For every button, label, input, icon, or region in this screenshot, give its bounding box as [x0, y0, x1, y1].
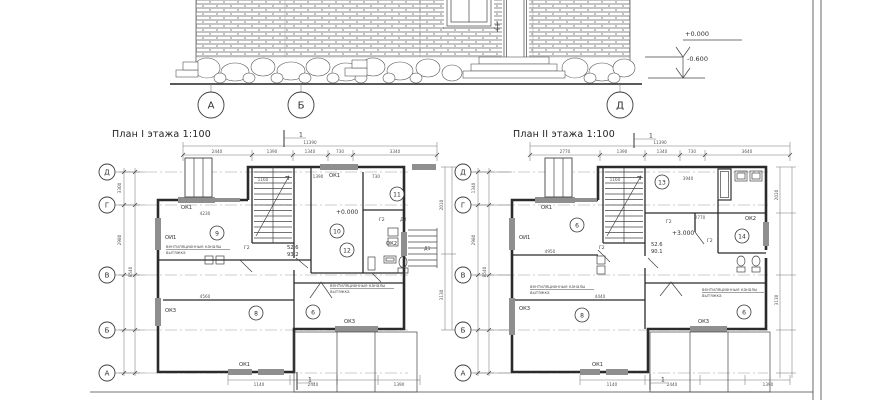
labels-2: ОК1 ОИ1 ОК2 ОК3 ОК1 ОК3 Г2 Г2 Г2 +3.000 … — [519, 175, 764, 368]
window-label: ОК1 — [541, 205, 552, 211]
dim: 4950 — [545, 249, 556, 254]
door-label: Г2 — [666, 219, 672, 225]
dim: 2770 — [560, 149, 571, 154]
dim: 3130 — [774, 294, 779, 305]
dim: 1390 — [267, 149, 278, 154]
drawing-canvas: А Б Д +0.000 -0.600 Д Г В Б — [0, 0, 870, 400]
vent-note: вытяжка — [530, 290, 550, 295]
dim: 2010 — [774, 189, 779, 200]
dim: 3640 — [742, 149, 753, 154]
p1-axis-a: А — [105, 370, 110, 378]
blueprint-svg: А Б Д +0.000 -0.600 Д Г В Б — [0, 0, 870, 400]
window-label: ОК2 — [386, 241, 397, 247]
door-label: Д2 — [400, 217, 407, 223]
level-minus: -0.600 — [687, 55, 708, 63]
vent-note: вентиляционные каналы — [530, 284, 585, 289]
floor-plan-1: Д Г В Б А 2440 1390 1340 730 3340 11390 — [99, 130, 456, 392]
elevation-axis-bubbles: А Б Д — [198, 84, 633, 118]
window-label: ОК3 — [698, 319, 709, 325]
vent-note: вытяжка — [330, 289, 350, 294]
p1-axis-d: Д — [104, 169, 110, 177]
section-mark-1: 1 — [299, 132, 303, 139]
window-label: ОК1 — [181, 205, 192, 211]
window-label: ОК1 — [239, 362, 250, 368]
dim: 8540 — [482, 266, 487, 277]
stair-dim: 1160 — [258, 177, 269, 182]
dim: 2010 — [439, 199, 444, 210]
dim: 4440 — [595, 294, 606, 299]
axis-bubble-b: Б — [298, 101, 305, 112]
p2-axis-v: В — [461, 272, 466, 280]
window-label: ОК3 — [344, 319, 355, 325]
level-zero: +0.000 — [685, 30, 709, 38]
p2-axis-d: Д — [460, 169, 466, 177]
dim: 1390 — [763, 382, 774, 387]
dim: 1140 — [254, 382, 265, 387]
chimney-2 — [545, 158, 572, 197]
floor-plan-2: Д Г В Б А 2770 1390 1340 730 3640 11390 — [455, 133, 796, 393]
chimney-1 — [185, 158, 212, 197]
window-label: ОИ1 — [519, 235, 530, 241]
door-label: Д1 — [424, 246, 431, 252]
dim-total: 11390 — [653, 140, 667, 145]
room-number: 9 — [215, 231, 219, 238]
window-label: ОК1 — [592, 362, 603, 368]
dim: 730 — [688, 149, 696, 154]
axis-bubble-a: А — [208, 101, 215, 112]
window-label: ОИ1 — [165, 235, 176, 241]
p2-axis-b: Б — [461, 327, 466, 335]
toilet-icon — [737, 256, 745, 266]
dim: 1340 — [657, 149, 668, 154]
room-number: 14 — [738, 234, 746, 241]
elevation-steps — [463, 57, 565, 78]
dim: 1340 — [471, 182, 476, 193]
door-label: Г2 — [599, 245, 605, 251]
dim: 1390 — [394, 382, 405, 387]
level-marks: +0.000 -0.600 — [645, 30, 742, 78]
dim: 2980 — [471, 234, 476, 245]
stair-dim: 1160 — [610, 177, 621, 182]
dim: 3130 — [439, 289, 444, 300]
vent-note: вытяжка — [166, 250, 186, 255]
axis-bubble-d: Д — [616, 101, 624, 112]
room-number: 6 — [742, 310, 746, 317]
dim: 2440 — [667, 382, 678, 387]
door-label: Г2 — [244, 245, 250, 251]
elevation-window — [443, 0, 495, 29]
window-label: ОК3 — [165, 308, 176, 314]
vent-note: вентиляционные каналы — [166, 244, 221, 249]
dim: 3340 — [390, 149, 401, 154]
elevation: А Б Д +0.000 -0.600 — [170, 0, 742, 118]
section-mark-1: 1 — [661, 377, 665, 384]
dim: 4560 — [200, 294, 211, 299]
plan1-title: План I этажа 1:100 — [112, 129, 211, 140]
room-number: 6 — [575, 223, 579, 230]
dim: 1340 — [305, 149, 316, 154]
room-number: 6 — [311, 310, 315, 317]
room-number: 8 — [580, 313, 584, 320]
p1-axis-v: В — [105, 272, 110, 280]
dim: 1390 — [617, 149, 628, 154]
toilet-icon — [752, 256, 760, 266]
window-label: ОК1 — [329, 173, 340, 179]
dim: 4230 — [200, 211, 211, 216]
dim: 3940 — [683, 176, 694, 181]
room-number: 11 — [393, 192, 401, 199]
fixtures-1 — [205, 228, 408, 273]
dim-total: 11390 — [303, 140, 317, 145]
door-label: Г2 — [707, 238, 713, 244]
room-number: 10 — [333, 229, 341, 236]
dim: 730 — [336, 149, 344, 154]
room-number: 12 — [343, 248, 351, 255]
level-label: +0.000 — [336, 209, 358, 216]
stone-foundation — [194, 58, 635, 83]
dim: 730 — [372, 174, 380, 179]
area-value: 90.1 — [651, 249, 663, 255]
dim: 1390 — [313, 174, 324, 179]
dim: 1140 — [607, 382, 618, 387]
section-mark-1: 1 — [308, 377, 312, 384]
window-label: ОК2 — [745, 216, 756, 222]
vent-note: вытяжка — [702, 293, 722, 298]
wardrobe-icon — [718, 169, 731, 200]
section-mark-1: 1 — [649, 133, 653, 140]
area-value: 52.6 — [287, 245, 299, 251]
door-label: Г2 — [379, 217, 385, 223]
area-value: 93.2 — [287, 252, 299, 258]
entrance-steps-1 — [408, 228, 437, 268]
p1-axis-b: Б — [105, 327, 110, 335]
p2-axis-a: А — [461, 370, 466, 378]
area-value: 52.6 — [651, 242, 663, 248]
brick-wall — [196, 0, 630, 57]
plan2-title: План II этажа 1:100 — [513, 129, 615, 140]
p1-axis-g: Г — [105, 202, 109, 210]
dim: 2770 — [695, 215, 706, 220]
dim: 3300 — [117, 182, 122, 193]
dim: 8540 — [128, 266, 133, 277]
room-number: 13 — [658, 180, 666, 187]
level-label: +3.000 — [672, 230, 694, 237]
dim: 2980 — [117, 234, 122, 245]
window-label: ОК3 — [519, 306, 530, 312]
p2-axis-g: Г — [461, 202, 465, 210]
vent-note: вентиляционные каналы — [702, 287, 757, 292]
dim: 2440 — [212, 149, 223, 154]
room-number: 8 — [254, 311, 258, 318]
vent-note: вентиляционные каналы — [330, 283, 385, 288]
